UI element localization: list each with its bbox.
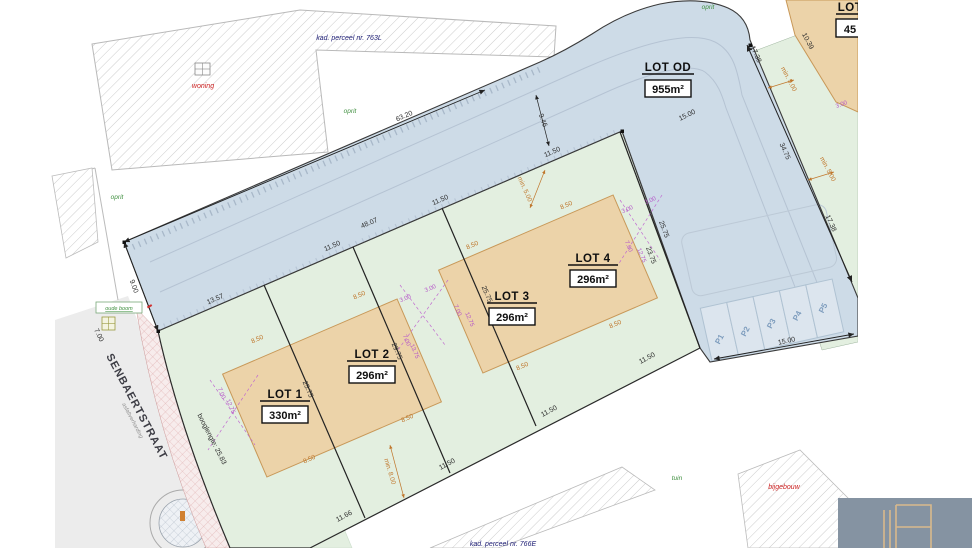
company-logo <box>838 498 972 548</box>
lot-od-label: LOT OD <box>645 62 691 74</box>
lot1-label: LOT 1 <box>267 389 302 401</box>
kad-parcel-top-label: kad. perceel nr. 763L <box>316 35 382 42</box>
site-plan-canvas: P1 P2 P3 P4 P5 63.20 9.00 13.57 48.07 11 <box>0 0 972 548</box>
tree-icon <box>102 317 115 330</box>
existing-house-icon <box>195 63 210 75</box>
lot3-title: LOT 3 296m² <box>487 291 537 325</box>
dim-left-edge: 9.00 <box>128 279 139 294</box>
lot-od-title: LOT OD 955m² <box>642 62 694 97</box>
tuin-label: tuin <box>672 475 683 482</box>
neighbour-parcel-bottom <box>430 467 655 548</box>
site-plan-svg: P1 P2 P3 P4 P5 63.20 9.00 13.57 48.07 11 <box>0 0 972 548</box>
oprit-label-left: oprit <box>111 194 125 201</box>
lot4-area: 296m² <box>577 274 609 286</box>
oprit-label-ne: oprit <box>702 4 716 11</box>
green-note-label: oude boom <box>105 306 133 312</box>
lot1-area: 330m² <box>269 410 301 422</box>
map-mask-right <box>858 0 972 492</box>
hydrant-icon <box>180 511 185 521</box>
lot-od-area: 955m² <box>652 84 684 96</box>
woning-label: woning <box>192 83 214 90</box>
lot2-label: LOT 2 <box>354 349 389 361</box>
lot2-area: 296m² <box>356 370 388 382</box>
street-curb-line <box>95 168 118 300</box>
kad-parcel-bottom-label: kad. perceel nr. 766E <box>470 541 537 548</box>
lot4-label: LOT 4 <box>575 253 610 265</box>
lot3-label: LOT 3 <box>494 291 529 303</box>
lot2-title: LOT 2 296m² <box>347 349 397 383</box>
lot3-area: 296m² <box>496 312 528 324</box>
oprit-label-top: oprit <box>344 108 358 115</box>
bijgebouw-label: bijgebouw <box>768 484 800 491</box>
lot1-title: LOT 1 330m² <box>260 389 310 423</box>
neighbour-parcel-left <box>52 168 98 258</box>
lot-ne-area: 45 <box>844 24 856 36</box>
lot4-title: LOT 4 296m² <box>568 253 618 287</box>
